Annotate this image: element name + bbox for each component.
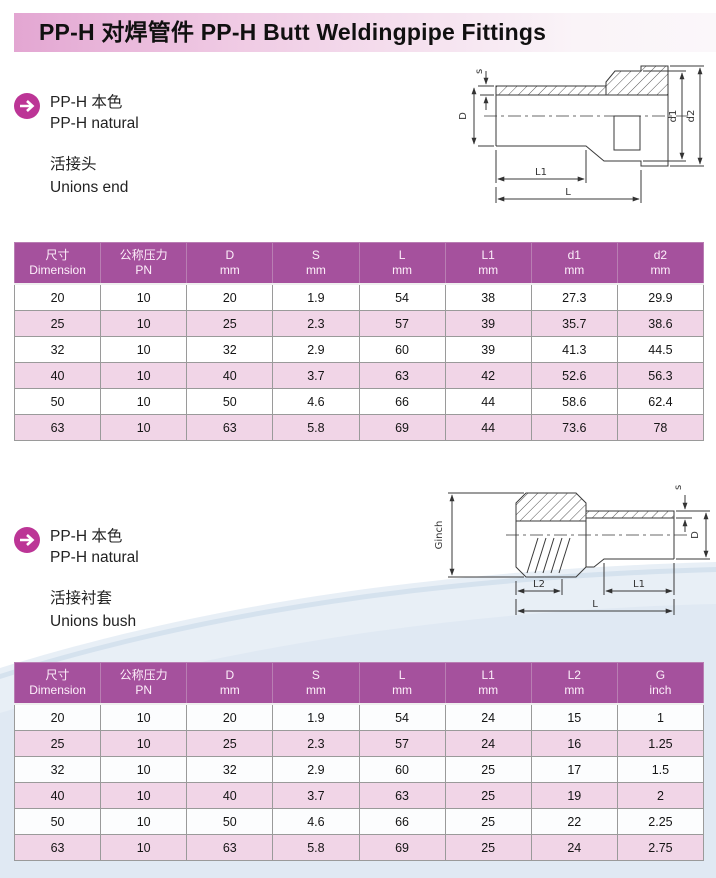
- table-cell: 25: [445, 757, 531, 783]
- dim-label-D: D: [458, 112, 469, 120]
- table-cell: 5.8: [273, 835, 359, 861]
- table-cell: 25: [15, 731, 101, 757]
- table-cell: 50: [187, 809, 273, 835]
- column-header: Ginch: [617, 663, 703, 705]
- title-banner: PP-H 对焊管件 PP-H Butt Weldingpipe Fittings: [14, 13, 716, 52]
- header-row: 尺寸Dimension公称压力PNDmmSmmLmmL1mmd1mmd2mm: [15, 243, 704, 285]
- dim-label-s: s: [474, 69, 485, 74]
- table-cell: 4.6: [273, 389, 359, 415]
- table-cell: 24: [445, 704, 531, 731]
- table-cell: 1.9: [273, 704, 359, 731]
- table-cell: 17: [531, 757, 617, 783]
- table-cell: 50: [187, 389, 273, 415]
- table-cell: 10: [101, 704, 187, 731]
- table-row: 2510252.35724161.25: [15, 731, 704, 757]
- table-cell: 41.3: [531, 337, 617, 363]
- table-cell: 10: [101, 783, 187, 809]
- table-cell: 40: [15, 783, 101, 809]
- table-cell: 10: [101, 835, 187, 861]
- table-cell: 25: [15, 311, 101, 337]
- table-cell: 40: [15, 363, 101, 389]
- table-cell: 16: [531, 731, 617, 757]
- column-header: Smm: [273, 243, 359, 285]
- arrow-right-circle-icon: [14, 93, 40, 119]
- table-cell: 66: [359, 389, 445, 415]
- table-cell: 69: [359, 415, 445, 441]
- table-cell: 2: [617, 783, 703, 809]
- table-cell: 15: [531, 704, 617, 731]
- section-header: PP-H 本色 PP-H natural: [14, 92, 414, 134]
- table-cell: 38.6: [617, 311, 703, 337]
- dim-label-s: s: [673, 485, 684, 490]
- table-cell: 19: [531, 783, 617, 809]
- table-row: 4010403.76325192: [15, 783, 704, 809]
- table-cell: 54: [359, 704, 445, 731]
- table-cell: 32: [187, 337, 273, 363]
- dim-label-L1: L1: [535, 167, 547, 178]
- section-unions-bush: PP-H 本色 PP-H natural 活接衬套 Unions bush: [14, 526, 414, 633]
- column-header: Dmm: [187, 663, 273, 705]
- column-header: Lmm: [359, 663, 445, 705]
- header-row: 尺寸Dimension公称压力PNDmmSmmLmmL1mmL2mmGinch: [15, 663, 704, 705]
- table-cell: 63: [359, 363, 445, 389]
- dim-label-L: L: [565, 187, 571, 198]
- table-cell: 38: [445, 284, 531, 311]
- table-row: 2010201.95424151: [15, 704, 704, 731]
- table-cell: 2.75: [617, 835, 703, 861]
- section-unions-end: PP-H 本色 PP-H natural 活接头 Unions end: [14, 92, 414, 199]
- table-cell: 52.6: [531, 363, 617, 389]
- column-header: L1mm: [445, 663, 531, 705]
- table-cell: 56.3: [617, 363, 703, 389]
- table-cell: 22: [531, 809, 617, 835]
- table-cell: 35.7: [531, 311, 617, 337]
- column-header: 尺寸Dimension: [15, 243, 101, 285]
- unions-end-technical-drawing: s D d1 d2 L1 L: [436, 58, 716, 208]
- table-cell: 60: [359, 757, 445, 783]
- table-cell: 32: [15, 337, 101, 363]
- table-cell: 2.9: [273, 337, 359, 363]
- table-cell: 63: [187, 415, 273, 441]
- dim-label-L2: L2: [533, 579, 545, 590]
- table-cell: 63: [359, 783, 445, 809]
- dim-label-L1: L1: [633, 579, 645, 590]
- table-cell: 25: [187, 731, 273, 757]
- table-cell: 50: [15, 389, 101, 415]
- section-header: PP-H 本色 PP-H natural: [14, 526, 414, 568]
- table-cell: 42: [445, 363, 531, 389]
- table-cell: 44.5: [617, 337, 703, 363]
- table-cell: 10: [101, 809, 187, 835]
- table-cell: 50: [15, 809, 101, 835]
- column-header: L1mm: [445, 243, 531, 285]
- table-cell: 20: [15, 284, 101, 311]
- table-cell: 1.9: [273, 284, 359, 311]
- table-row: 6310635.8694473.678: [15, 415, 704, 441]
- table-cell: 24: [445, 731, 531, 757]
- unions-bush-technical-drawing: Ginch s D L2 L1 L: [424, 468, 716, 628]
- table-cell: 4.6: [273, 809, 359, 835]
- table-cell: 63: [15, 835, 101, 861]
- table-cell: 25: [187, 311, 273, 337]
- table-cell: 27.3: [531, 284, 617, 311]
- table-row: 3210322.9603941.344.5: [15, 337, 704, 363]
- table-cell: 32: [15, 757, 101, 783]
- material-name-cn: PP-H 本色: [50, 526, 139, 547]
- table-cell: 32: [187, 757, 273, 783]
- material-name-cn: PP-H 本色: [50, 92, 139, 113]
- arrow-right-circle-icon: [14, 527, 40, 553]
- table-cell: 29.9: [617, 284, 703, 311]
- unions-end-spec-table: 尺寸Dimension公称压力PNDmmSmmLmmL1mmd1mmd2mm20…: [14, 242, 704, 441]
- table-cell: 69: [359, 835, 445, 861]
- table-row: 6310635.86925242.75: [15, 835, 704, 861]
- table-cell: 5.8: [273, 415, 359, 441]
- material-name-en: PP-H natural: [50, 113, 139, 134]
- table-cell: 39: [445, 311, 531, 337]
- table-cell: 39: [445, 337, 531, 363]
- table-cell: 3.7: [273, 363, 359, 389]
- table-cell: 25: [445, 809, 531, 835]
- table-cell: 73.6: [531, 415, 617, 441]
- column-header: 公称压力PN: [101, 663, 187, 705]
- column-header: 尺寸Dimension: [15, 663, 101, 705]
- dim-label-L: L: [592, 599, 598, 610]
- table-row: 2010201.9543827.329.9: [15, 284, 704, 311]
- column-header: Lmm: [359, 243, 445, 285]
- dim-label-Ginch: Ginch: [434, 521, 445, 550]
- column-header: L2mm: [531, 663, 617, 705]
- unions-bush-spec-table: 尺寸Dimension公称压力PNDmmSmmLmmL1mmL2mmGinch2…: [14, 662, 704, 861]
- product-name-cn: 活接衬套: [50, 587, 414, 610]
- table-cell: 40: [187, 783, 273, 809]
- dim-label-D: D: [690, 531, 701, 539]
- table-cell: 57: [359, 731, 445, 757]
- table-row: 5010504.6664458.662.4: [15, 389, 704, 415]
- product-name-cn: 活接头: [50, 153, 414, 176]
- table-cell: 62.4: [617, 389, 703, 415]
- table-cell: 10: [101, 731, 187, 757]
- table-cell: 60: [359, 337, 445, 363]
- table-cell: 3.7: [273, 783, 359, 809]
- table-cell: 20: [187, 704, 273, 731]
- table-cell: 2.3: [273, 311, 359, 337]
- table-cell: 2.3: [273, 731, 359, 757]
- table-row: 3210322.96025171.5: [15, 757, 704, 783]
- material-name-en: PP-H natural: [50, 547, 139, 568]
- table-cell: 10: [101, 284, 187, 311]
- table-cell: 10: [101, 757, 187, 783]
- table-cell: 2.9: [273, 757, 359, 783]
- product-name-en: Unions end: [50, 176, 414, 199]
- table-cell: 1: [617, 704, 703, 731]
- table-row: 2510252.3573935.738.6: [15, 311, 704, 337]
- table-row: 4010403.7634252.656.3: [15, 363, 704, 389]
- table-cell: 10: [101, 311, 187, 337]
- table-cell: 66: [359, 809, 445, 835]
- table-cell: 24: [531, 835, 617, 861]
- product-name-en: Unions bush: [50, 610, 414, 633]
- table-cell: 57: [359, 311, 445, 337]
- table-cell: 44: [445, 389, 531, 415]
- table-cell: 78: [617, 415, 703, 441]
- table-cell: 54: [359, 284, 445, 311]
- column-header: Smm: [273, 663, 359, 705]
- table-cell: 10: [101, 415, 187, 441]
- dim-label-d1: d1: [668, 110, 679, 123]
- column-header: Dmm: [187, 243, 273, 285]
- column-header: d2mm: [617, 243, 703, 285]
- table-cell: 10: [101, 389, 187, 415]
- dim-label-d2: d2: [686, 110, 697, 123]
- table-cell: 63: [187, 835, 273, 861]
- table-cell: 25: [445, 835, 531, 861]
- table-cell: 10: [101, 363, 187, 389]
- table-row: 5010504.66625222.25: [15, 809, 704, 835]
- table-cell: 2.25: [617, 809, 703, 835]
- table-cell: 20: [187, 284, 273, 311]
- table-cell: 63: [15, 415, 101, 441]
- column-header: d1mm: [531, 243, 617, 285]
- table-cell: 25: [445, 783, 531, 809]
- table-cell: 44: [445, 415, 531, 441]
- table-cell: 20: [15, 704, 101, 731]
- table-cell: 1.25: [617, 731, 703, 757]
- table-cell: 10: [101, 337, 187, 363]
- column-header: 公称压力PN: [101, 243, 187, 285]
- table-cell: 40: [187, 363, 273, 389]
- table-cell: 1.5: [617, 757, 703, 783]
- page-title: PP-H 对焊管件 PP-H Butt Weldingpipe Fittings: [14, 13, 716, 52]
- table-cell: 58.6: [531, 389, 617, 415]
